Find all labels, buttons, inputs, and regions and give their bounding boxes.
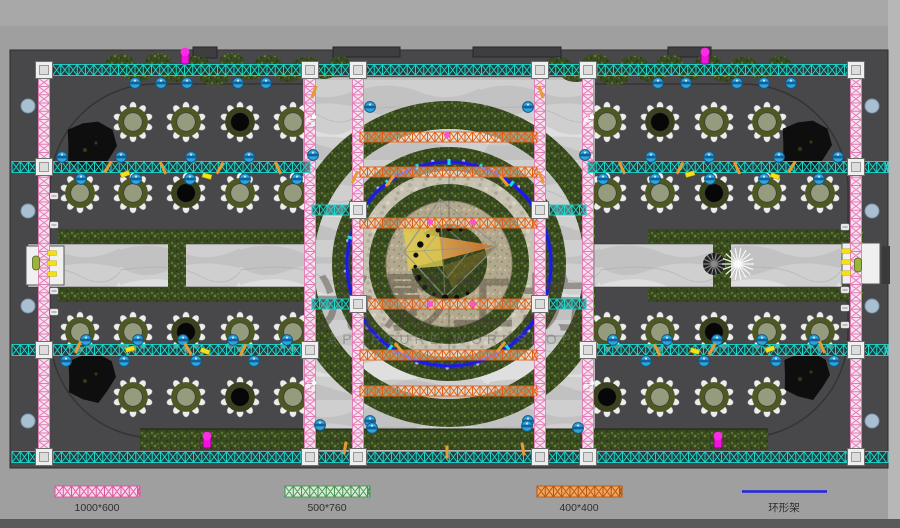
wall-sconce-dot — [21, 99, 35, 113]
side-chair-icon — [841, 224, 850, 231]
floor-plan-page: 光影工坊 APERTURE WORKSHOP 1000*600500*76040… — [0, 0, 900, 528]
tree-leaf-speck — [94, 372, 97, 375]
side-chair-icon — [841, 305, 850, 312]
table-top — [177, 388, 195, 406]
moving-head-light-blue — [598, 174, 609, 185]
moving-head-light-magenta — [181, 48, 190, 64]
legend-label: 环形架 — [768, 502, 800, 514]
moving-head-light-blue — [233, 78, 244, 89]
truss-junction — [532, 449, 549, 466]
table-top — [705, 113, 723, 131]
side-chair-icon — [50, 288, 59, 295]
moving-head-light-blue — [641, 356, 652, 367]
table-top — [758, 388, 776, 406]
wall-sconce-dot — [21, 204, 35, 218]
table-top — [598, 184, 616, 202]
moving-head-light-blue — [681, 78, 692, 89]
moving-head-light-blue — [712, 335, 723, 346]
moving-head-light-blue — [573, 423, 584, 434]
tree-leaf-speck — [798, 377, 802, 381]
moving-head-light-blue — [119, 356, 130, 367]
moving-head-light-blue — [367, 423, 378, 434]
moving-head-light-blue — [829, 356, 840, 367]
moving-head-light-blue — [57, 152, 68, 163]
yellow-par-light — [842, 271, 851, 276]
side-chair-icon — [50, 309, 59, 316]
moving-head-light-blue — [653, 78, 664, 89]
moving-head-light-blue — [522, 421, 533, 432]
tree-leaf-speck — [83, 379, 87, 383]
table-top — [231, 388, 249, 406]
tree-leaf-speck — [798, 147, 802, 151]
pink-marker-dot — [470, 219, 476, 225]
moving-head-light-blue — [156, 78, 167, 89]
moving-head-light-blue — [662, 335, 673, 346]
moving-head-light-blue — [774, 152, 785, 163]
moving-head-light-blue — [650, 174, 661, 185]
table-top — [231, 113, 249, 131]
yellow-par-light — [842, 260, 851, 265]
moving-head-light-blue — [186, 152, 197, 163]
truss-junction — [848, 449, 865, 466]
moving-head-light-blue — [732, 78, 743, 89]
wall-sconce-dot — [865, 414, 879, 428]
truss-junction — [532, 296, 549, 313]
table-top — [177, 184, 195, 202]
yellow-par-light — [48, 272, 57, 277]
moving-head-light-blue — [757, 335, 768, 346]
bottom-hedge-band — [140, 429, 768, 450]
truss-junction — [302, 449, 319, 466]
moving-head-light-magenta — [701, 48, 710, 64]
truss-junction — [350, 296, 367, 313]
stage-riser — [473, 47, 561, 57]
table-top — [705, 388, 723, 406]
table-top — [284, 184, 302, 202]
person-marker — [855, 258, 862, 272]
moving-head-light-blue — [182, 78, 193, 89]
legend-label: 1000*600 — [75, 502, 120, 514]
moving-head-light-magenta — [714, 432, 723, 448]
ring-light — [448, 159, 451, 165]
truss-junction — [532, 202, 549, 219]
pink-marker-dot — [444, 132, 450, 138]
moving-head-light-blue — [308, 150, 319, 161]
truss-junction — [350, 62, 367, 79]
moving-head-light-blue — [249, 356, 260, 367]
table-top — [124, 113, 142, 131]
truss-junction — [302, 342, 319, 359]
moving-head-light-blue — [133, 335, 144, 346]
moving-head-light-magenta — [203, 432, 212, 448]
table-top — [651, 113, 669, 131]
moving-head-light-blue — [809, 335, 820, 346]
truss-junction — [36, 449, 53, 466]
pebble — [413, 265, 417, 269]
stage-riser — [333, 47, 400, 57]
wall-sconce-dot — [21, 414, 35, 428]
yellow-par-light — [842, 249, 851, 254]
moving-head-light-blue — [240, 174, 251, 185]
side-chair-icon — [50, 193, 59, 200]
moving-head-light-blue — [759, 78, 770, 89]
top-margin — [0, 0, 900, 26]
yellow-par-light — [48, 261, 57, 266]
tree-leaf-speck — [83, 148, 87, 152]
wall-sconce-dot — [865, 204, 879, 218]
table-top — [811, 184, 829, 202]
wall-sconce-dot — [865, 99, 879, 113]
moving-head-light-blue — [191, 356, 202, 367]
moving-head-light-blue — [185, 174, 196, 185]
table-top — [284, 388, 302, 406]
truss-junction — [848, 62, 865, 79]
truss-junction — [580, 62, 597, 79]
truss-junction — [350, 449, 367, 466]
moving-head-light-blue — [244, 152, 255, 163]
pebble — [426, 234, 430, 238]
truss-junction — [302, 62, 319, 79]
moving-head-light-blue — [771, 356, 782, 367]
moving-head-light-blue — [786, 78, 797, 89]
moving-head-light-blue — [130, 78, 141, 89]
side-chair-icon — [50, 222, 59, 229]
pink-marker-dot — [427, 301, 433, 307]
bottom-strip — [0, 519, 900, 528]
truss-junction — [36, 342, 53, 359]
moving-head-light-blue — [704, 152, 715, 163]
moving-head-light-blue — [814, 174, 825, 185]
table-top — [598, 113, 616, 131]
truss-junction — [848, 159, 865, 176]
pebble — [459, 228, 463, 232]
tree-leaf-speck — [809, 140, 812, 143]
table-top — [124, 388, 142, 406]
table-top — [598, 388, 616, 406]
tree-leaf-speck — [94, 141, 97, 144]
pebble — [413, 253, 418, 258]
moving-head-light-blue — [61, 356, 72, 367]
right-aisle-hedge-top — [648, 229, 863, 243]
table-top — [231, 184, 249, 202]
truss-junction — [36, 159, 53, 176]
table-top — [284, 113, 302, 131]
moving-head-light-blue — [292, 174, 303, 185]
moving-head-light-blue — [261, 78, 272, 89]
amber-beam — [446, 446, 449, 459]
table-top — [758, 184, 776, 202]
moving-head-light-blue — [76, 174, 87, 185]
table-top — [71, 184, 89, 202]
tree-leaf-speck — [809, 370, 812, 373]
moving-head-light-blue — [315, 420, 326, 431]
moving-head-light-blue — [81, 335, 92, 346]
moving-head-light-blue — [131, 174, 142, 185]
moving-head-light-blue — [833, 152, 844, 163]
side-chair-icon — [841, 287, 850, 294]
truss-junction — [848, 342, 865, 359]
person-marker — [33, 256, 40, 270]
moving-head-light-blue — [282, 335, 293, 346]
pebble — [417, 241, 423, 247]
moving-head-light-blue — [759, 174, 770, 185]
moving-head-light-blue — [228, 335, 239, 346]
truss-junction — [532, 62, 549, 79]
truss-junction — [36, 62, 53, 79]
table-top — [651, 184, 669, 202]
moving-head-light-blue — [116, 152, 127, 163]
wall-notch — [882, 246, 890, 284]
legend-label: 400*400 — [559, 502, 598, 514]
venue-floor-plan: 光影工坊 APERTURE WORKSHOP 1000*600500*76040… — [0, 0, 900, 528]
moving-head-light-blue — [705, 174, 716, 185]
moving-head-light-blue — [646, 152, 657, 163]
yellow-par-light — [48, 251, 57, 256]
truss-junction — [350, 202, 367, 219]
table-top — [177, 113, 195, 131]
side-chair-icon — [841, 322, 850, 329]
wall-sconce-dot — [21, 299, 35, 313]
pink-marker-dot — [427, 219, 433, 225]
moving-head-light-blue — [699, 356, 710, 367]
left-aisle-hedge-strip — [168, 229, 186, 302]
legend-label: 500*760 — [307, 502, 346, 514]
table-top — [705, 184, 723, 202]
truss-junction — [580, 449, 597, 466]
moving-head-light-blue — [608, 335, 619, 346]
moving-head-light-blue — [365, 102, 376, 113]
wall-sconce-dot — [865, 299, 879, 313]
table-top — [124, 184, 142, 202]
truss-junction — [580, 342, 597, 359]
table-top — [758, 113, 776, 131]
table-top — [651, 388, 669, 406]
moving-head-light-blue — [523, 102, 534, 113]
moving-head-light-blue — [580, 150, 591, 161]
moving-head-light-blue — [178, 335, 189, 346]
right-aisle-hedge-bottom — [648, 288, 863, 302]
pink-marker-dot — [470, 301, 476, 307]
